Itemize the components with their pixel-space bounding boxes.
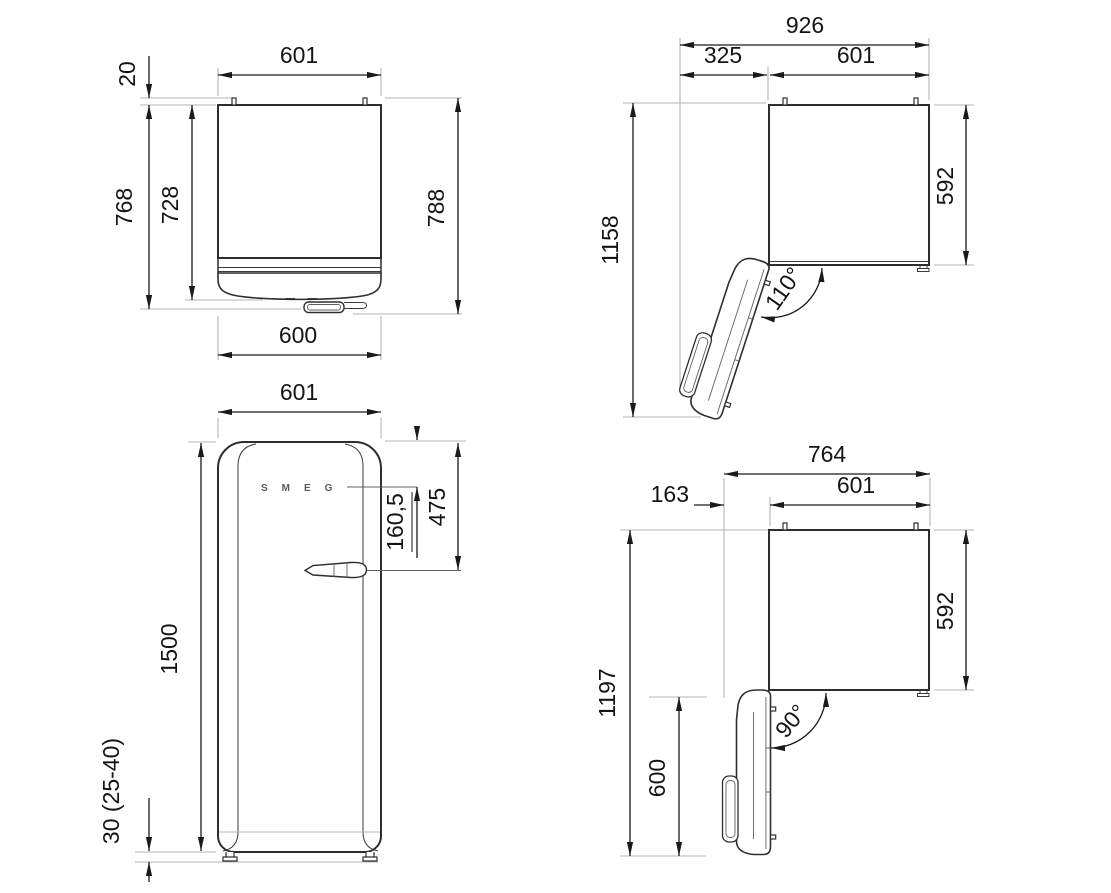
dim-total-depth-90: 1197 xyxy=(594,668,620,717)
dim-depth-with-door: 768 xyxy=(111,188,137,226)
dim-depth-no-door: 728 xyxy=(157,186,183,224)
open-door-110 xyxy=(674,249,775,422)
cabinet-front-outline xyxy=(218,442,381,852)
dim-door-clearance-90: 163 xyxy=(651,481,689,507)
hinge-pin-icon xyxy=(783,98,787,105)
dim-depth-total: 788 xyxy=(423,189,449,227)
door-top-outline xyxy=(218,273,381,299)
cabinet-top-outline xyxy=(769,530,929,690)
foot-icon xyxy=(223,852,237,861)
dim-body-width-90: 601 xyxy=(837,472,875,498)
dim-feet-height: 30 (25-40) xyxy=(98,738,124,844)
dim-height: 1500 xyxy=(156,623,182,674)
dim-body-width-110: 601 xyxy=(837,42,875,68)
handle-mount xyxy=(344,303,367,309)
hinge-pin-icon xyxy=(232,98,236,105)
dim-door-depth-90: 600 xyxy=(644,759,670,797)
dim-logo-offset: 160,5 xyxy=(382,493,408,551)
hinge-pin-icon xyxy=(363,98,367,105)
dim-wall-gap: 20 xyxy=(114,61,140,87)
hinge-pin-icon xyxy=(783,523,787,530)
handle-plan xyxy=(304,302,344,313)
hinge-pin-icon xyxy=(914,523,918,530)
dim-body-depth-90: 592 xyxy=(932,592,958,630)
dim-door-clearance-110: 325 xyxy=(704,42,742,68)
open-door-90 xyxy=(723,690,776,855)
view-top-closed: 601 20 768 728 788 600 xyxy=(111,42,462,360)
technical-drawing-canvas: 601 20 768 728 788 600 110° 92 xyxy=(0,0,1111,893)
view-front: SMEG 601 1500 475 160,5 30 (25-40) xyxy=(98,379,466,882)
view-top-open-90: 90° 764 163 601 1197 592 600 xyxy=(594,441,974,856)
dimension-drawing: 601 20 768 728 788 600 110° 92 xyxy=(0,0,1111,893)
dim-handle-offset: 475 xyxy=(424,488,450,526)
dim-total-depth-110: 1158 xyxy=(597,215,623,264)
cabinet-top-outline xyxy=(218,105,381,258)
dim-total-width-110: 926 xyxy=(786,12,824,38)
dim-body-width-top: 601 xyxy=(280,42,318,68)
view-top-open-110: 110° 926 325 601 1158 592 xyxy=(597,12,974,422)
brand-logo: SMEG xyxy=(261,483,346,494)
cabinet-top-outline xyxy=(769,105,929,265)
hinge-pin-icon xyxy=(914,98,918,105)
foot-icon xyxy=(363,852,377,861)
dim-door-width: 600 xyxy=(279,322,317,348)
dim-total-width-90: 764 xyxy=(808,441,847,467)
dim-body-depth-110: 592 xyxy=(932,167,958,205)
dim-front-width: 601 xyxy=(280,379,318,405)
